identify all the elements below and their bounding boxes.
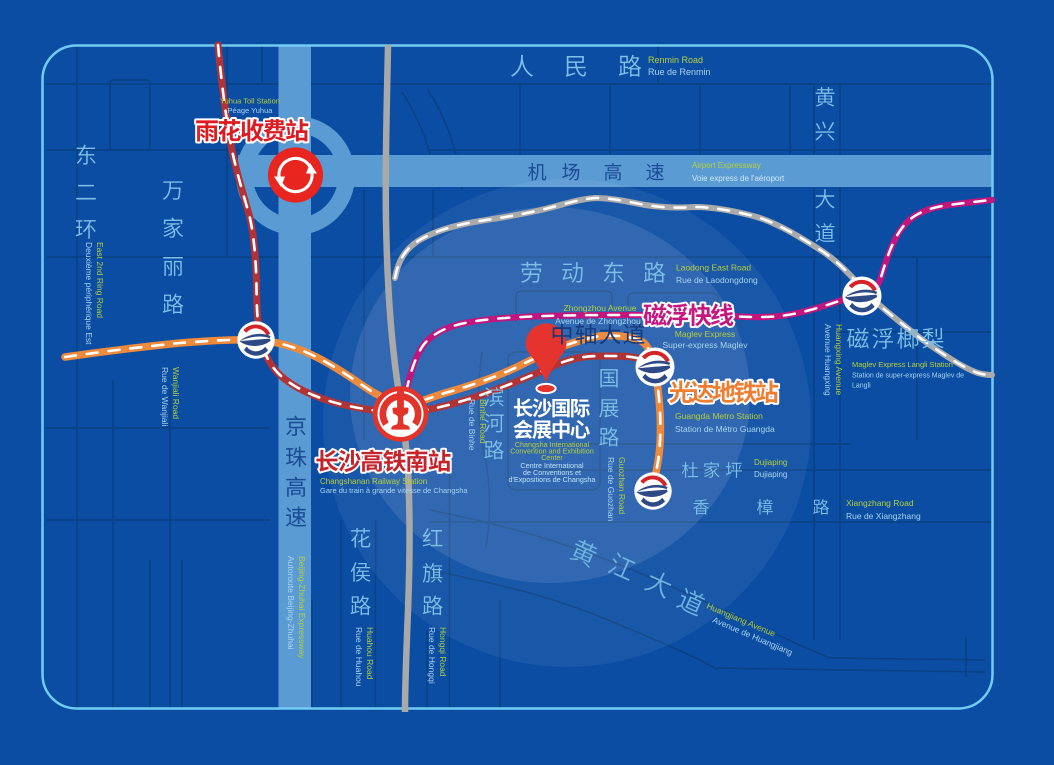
svg-text:Avenue Huangxing: Avenue Huangxing <box>823 324 833 396</box>
svg-text:Deuxième périphérique Est: Deuxième périphérique Est <box>84 242 94 345</box>
svg-text:Langli: Langli <box>852 383 871 390</box>
svg-text:Rue de Wanjiali: Rue de Wanjiali <box>160 367 170 426</box>
svg-text:Renmin Road: Renmin Road <box>648 55 703 65</box>
svg-text:Zhongzhou Avenue: Zhongzhou Avenue <box>563 303 636 313</box>
svg-text:Laodong East Road: Laodong East Road <box>676 263 751 273</box>
svg-text:Rue de Hongqi: Rue de Hongqi <box>427 627 437 684</box>
svg-text:Xiangzhang Road: Xiangzhang Road <box>846 498 914 508</box>
svg-text:Guozhan Road: Guozhan Road <box>617 457 627 514</box>
svg-text:Beijing-Zhuhai Expressway: Beijing-Zhuhai Expressway <box>297 556 307 659</box>
svg-text:Dujiaping: Dujiaping <box>754 470 787 479</box>
svg-text:Autoroute Beijing-Zhuhai: Autoroute Beijing-Zhuhai <box>286 556 296 650</box>
svg-text:Avenue de Zhongzhou: Avenue de Zhongzhou <box>555 316 641 326</box>
svg-text:d'Expositions de Changsha: d'Expositions de Changsha <box>509 475 596 484</box>
svg-text:Péage Yuhua: Péage Yuhua <box>228 106 274 115</box>
svg-text:Gare du train à grande vitesse: Gare du train à grande vitesse de Changs… <box>320 486 468 495</box>
svg-text:Airport Expressway: Airport Expressway <box>692 161 761 170</box>
svg-text:Hongqi Road: Hongqi Road <box>438 627 448 677</box>
svg-text:Maglev Express Langli Station: Maglev Express Langli Station <box>852 360 953 369</box>
svg-text:Yuhua Toll Station: Yuhua Toll Station <box>220 97 280 106</box>
svg-text:Voie express de l'aéroport: Voie express de l'aéroport <box>692 174 785 183</box>
svg-text:Rue de Huahou: Rue de Huahou <box>354 627 364 687</box>
svg-text:East 2nd Ring Road: East 2nd Ring Road <box>95 242 105 318</box>
svg-text:Changshanan Railway Station: Changshanan Railway Station <box>320 477 427 486</box>
svg-text:Wanjiali Road: Wanjiali Road <box>171 367 181 419</box>
svg-text:Rue de Binhe: Rue de Binhe <box>467 399 477 451</box>
svg-text:Rue de Laodongdong: Rue de Laodongdong <box>676 275 758 285</box>
svg-text:Rue de Renmin: Rue de Renmin <box>648 67 711 77</box>
svg-text:Station de super-express Magle: Station de super-express Maglev de <box>852 373 964 380</box>
svg-text:Maglev Express: Maglev Express <box>675 329 735 339</box>
svg-text:Station de Métro Guangda: Station de Métro Guangda <box>675 424 775 434</box>
svg-text:Rue de Guozhan: Rue de Guozhan <box>606 457 616 522</box>
svg-text:Binhe Road: Binhe Road <box>478 399 488 444</box>
svg-text:Guangda Metro Station: Guangda Metro Station <box>675 411 763 421</box>
svg-text:Dujiaping: Dujiaping <box>754 458 787 467</box>
svg-text:Rue de Xiangzhang: Rue de Xiangzhang <box>846 511 921 521</box>
svg-text:Huahou Road: Huahou Road <box>365 627 375 680</box>
svg-text:Huangxing Avenue: Huangxing Avenue <box>834 324 844 395</box>
svg-text:Super-express Maglev: Super-express Maglev <box>662 340 748 350</box>
